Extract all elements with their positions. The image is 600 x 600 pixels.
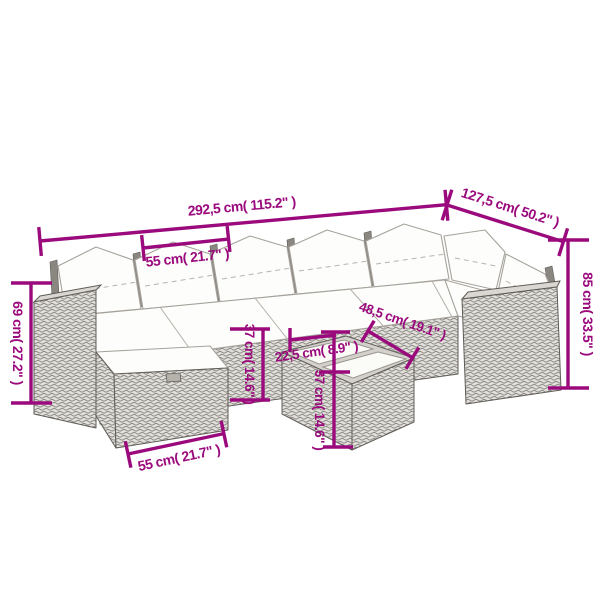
dim-total-width-label: 292,5 cm( 115.2" ) <box>187 193 296 219</box>
dim-table-height-label: 37 cm( 14.6" ) <box>312 370 327 450</box>
footstool <box>96 346 228 448</box>
back-cushion <box>366 224 449 287</box>
back-cushion <box>444 230 505 290</box>
sofa-drawing <box>34 224 561 450</box>
furniture-dimension-diagram: 292,5 cm( 115.2" ) 127,5 cm( 50.2" ) 85 … <box>0 0 600 600</box>
footstool-clip <box>166 373 181 382</box>
right-armrest-front <box>462 287 561 404</box>
dim-back-height-label: 85 cm( 33.5" ) <box>580 272 596 356</box>
right-armrest <box>462 281 561 404</box>
dim-arm-height-label: 69 cm( 27.2" ) <box>10 301 26 385</box>
dim-seat-height-label: 37 cm( 14.6" ) <box>242 324 257 404</box>
back-cushion <box>289 230 372 294</box>
left-armrest <box>34 285 101 428</box>
left-armrest-front <box>34 290 96 428</box>
dim-stool-width-label: 55 cm( 21.7" ) <box>136 441 221 474</box>
dim-wing-depth-label: 127,5 cm( 50.2" ) <box>459 184 561 230</box>
